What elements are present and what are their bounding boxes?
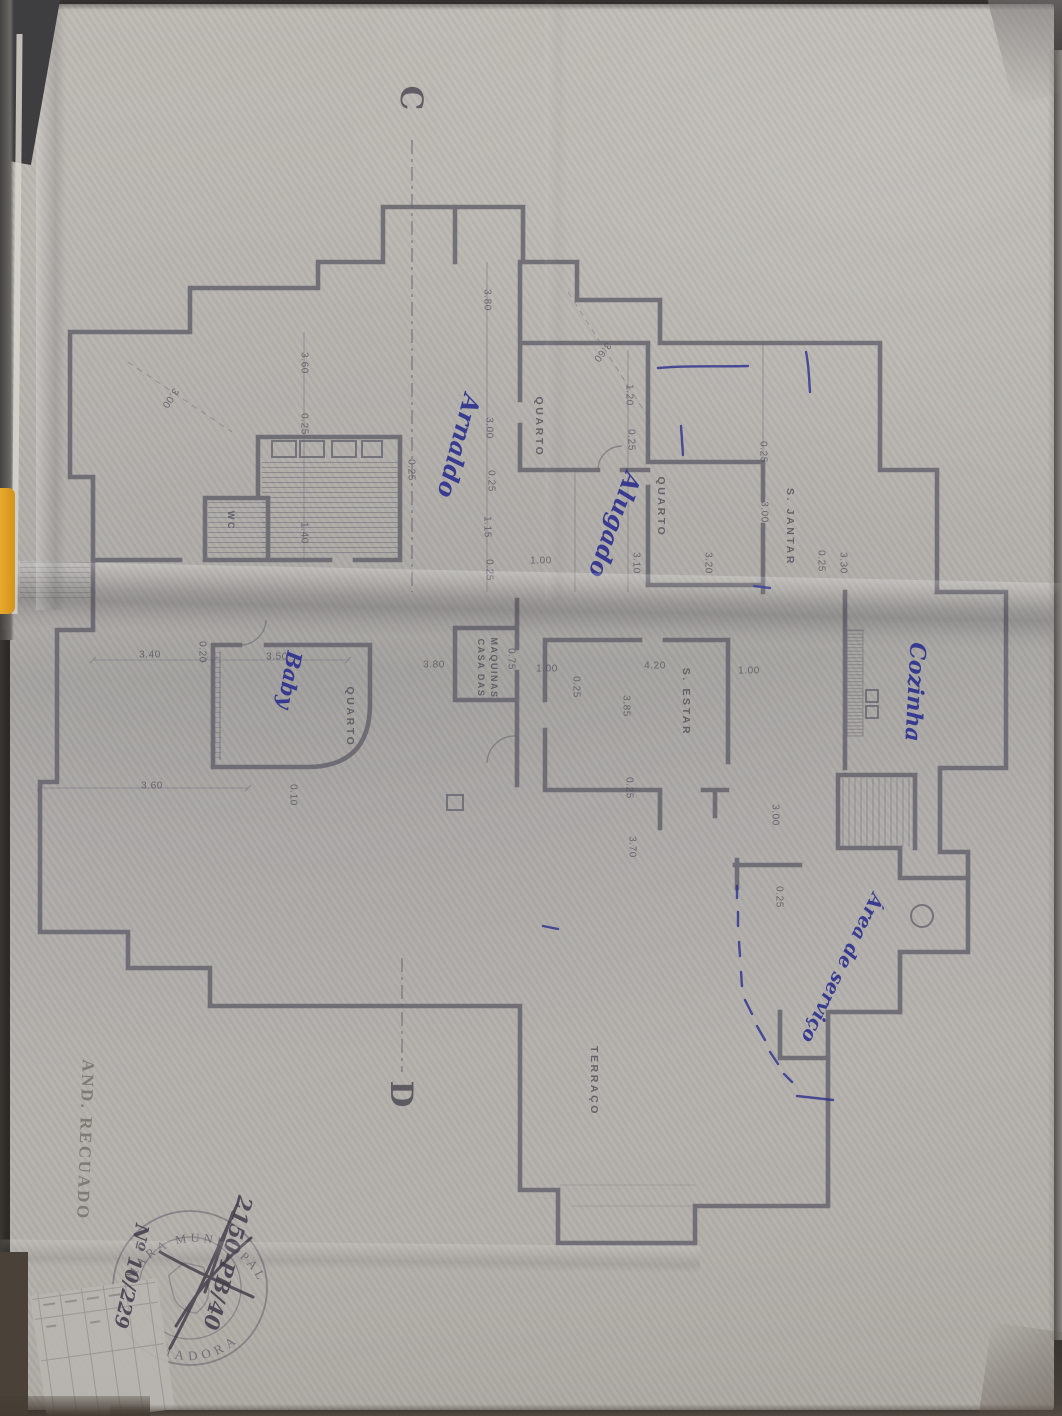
stamp-numbers-layer: 2150-PB/40Nº 10/229 bbox=[0, 0, 1062, 1416]
labels-layer: CD QUARTOQUARTOS. JANTARWCQUARTOCASA DAS… bbox=[0, 0, 1062, 1416]
photo-of-floor-plan: CÂMARA MUNICIPAL AMADORA bbox=[0, 0, 1062, 1416]
handwritten-stamp-number: 2150-PB/40 bbox=[198, 1193, 258, 1332]
handwritten-stamp-number: Nº 10/229 bbox=[109, 1222, 153, 1331]
